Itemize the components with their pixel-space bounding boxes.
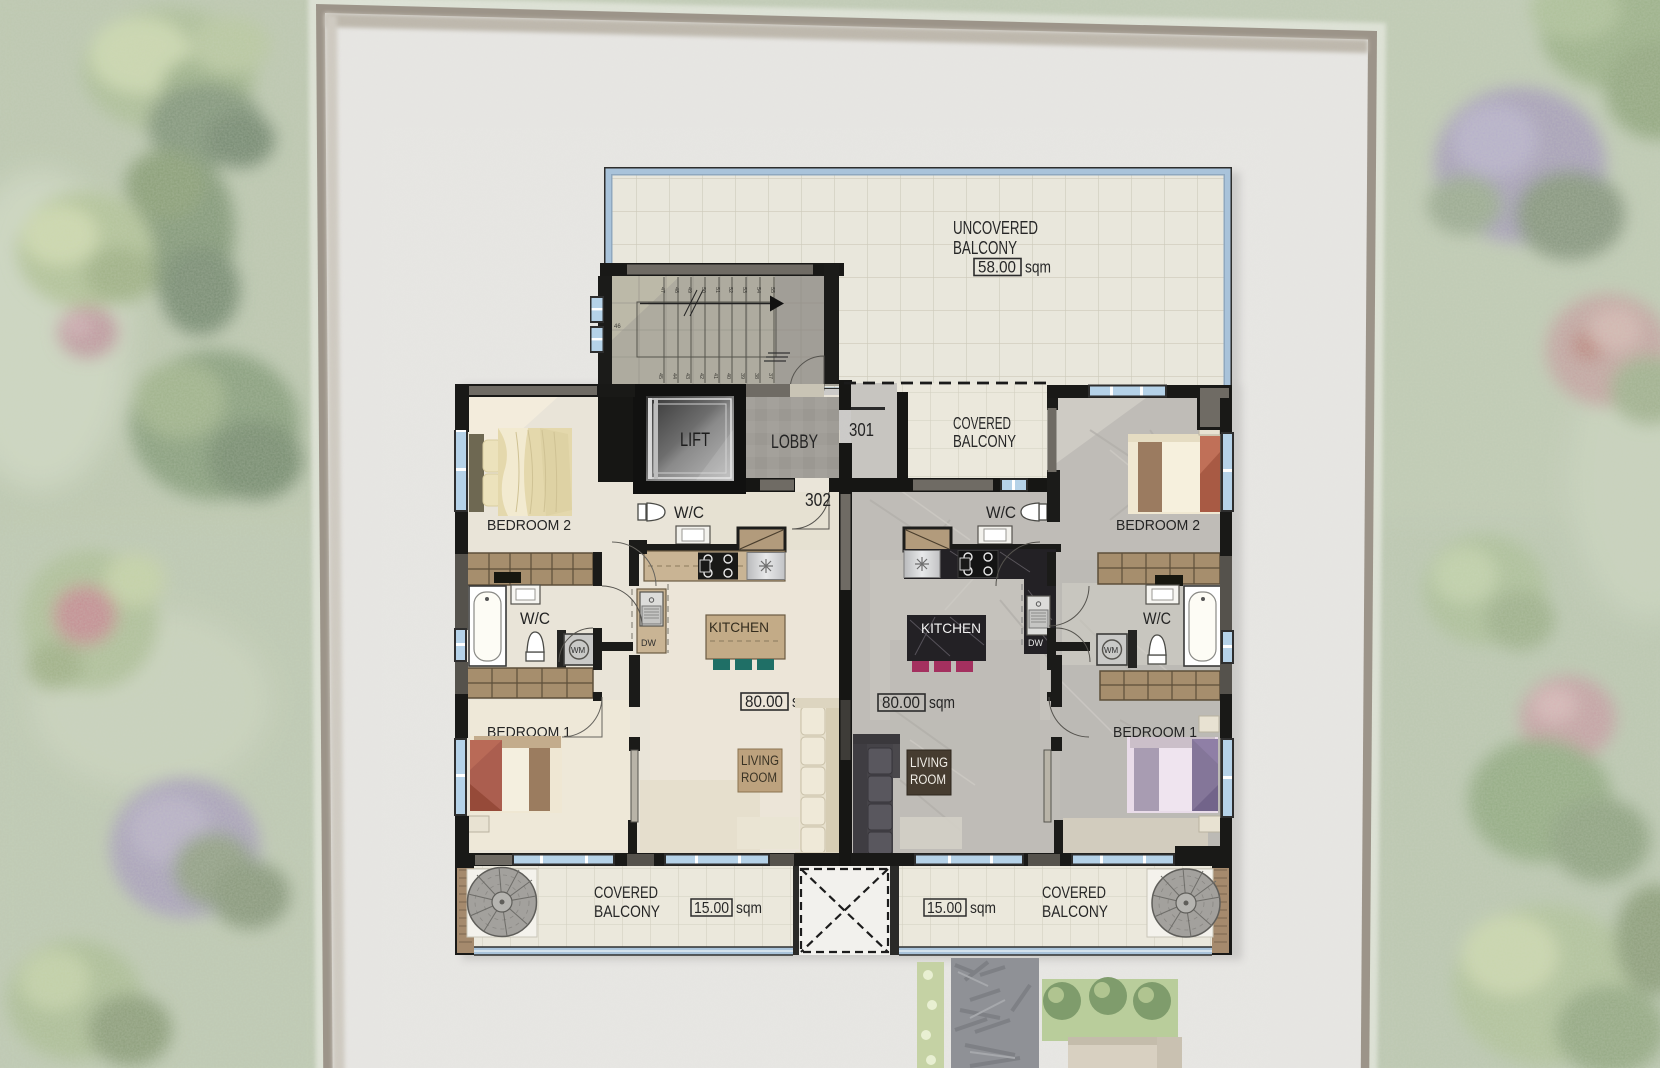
svg-text:BALCONY: BALCONY	[594, 903, 660, 921]
svg-text:sqm: sqm	[970, 900, 996, 917]
svg-text:BALCONY: BALCONY	[953, 431, 1016, 451]
svg-text:BEDROOM 2: BEDROOM 2	[487, 518, 571, 534]
svg-text:55: 55	[769, 287, 775, 293]
svg-text:302: 302	[805, 490, 831, 510]
svg-text:15.00: 15.00	[927, 900, 962, 917]
svg-text:50: 50	[700, 287, 706, 293]
svg-text:DW: DW	[641, 638, 656, 648]
svg-text:54: 54	[755, 287, 761, 293]
svg-text:15.00: 15.00	[694, 900, 729, 917]
svg-text:52: 52	[727, 287, 733, 293]
svg-text:301: 301	[849, 420, 874, 440]
svg-text:LOBBY: LOBBY	[771, 432, 818, 453]
svg-text:47: 47	[659, 287, 665, 293]
svg-text:51: 51	[714, 287, 720, 293]
svg-text:BALCONY: BALCONY	[953, 238, 1017, 258]
svg-text:COVERED: COVERED	[953, 413, 1011, 433]
svg-text:43: 43	[684, 373, 690, 379]
svg-text:sqm: sqm	[929, 694, 955, 712]
svg-text:COVERED: COVERED	[594, 884, 658, 902]
svg-text:KITCHEN: KITCHEN	[709, 619, 769, 635]
svg-text:UNCOVERED: UNCOVERED	[953, 218, 1038, 238]
svg-text:48: 48	[673, 287, 679, 293]
svg-text:ROOM: ROOM	[910, 772, 946, 787]
svg-text:BEDROOM 2: BEDROOM 2	[1116, 518, 1200, 534]
svg-text:DW: DW	[1028, 638, 1043, 648]
svg-text:39: 39	[739, 373, 745, 379]
svg-text:37: 37	[767, 373, 773, 379]
svg-text:53: 53	[741, 287, 747, 293]
svg-text:44: 44	[671, 373, 677, 379]
svg-text:LIVING: LIVING	[741, 753, 779, 768]
svg-text:ROOM: ROOM	[741, 770, 777, 785]
svg-text:49: 49	[686, 287, 692, 293]
svg-text:38: 38	[753, 373, 759, 379]
svg-text:KITCHEN: KITCHEN	[921, 620, 981, 636]
svg-text:W/C: W/C	[986, 504, 1016, 522]
svg-text:80.00: 80.00	[745, 693, 783, 711]
svg-text:40: 40	[725, 373, 731, 379]
svg-text:58.00: 58.00	[978, 259, 1016, 277]
svg-text:sqm: sqm	[736, 900, 762, 917]
svg-text:sqm: sqm	[1025, 259, 1051, 277]
svg-text:COVERED: COVERED	[1042, 884, 1106, 902]
svg-text:W/C: W/C	[1143, 610, 1171, 628]
svg-text:LIVING: LIVING	[910, 755, 948, 770]
svg-text:W/C: W/C	[520, 610, 550, 628]
svg-text:WM: WM	[1104, 646, 1119, 655]
svg-text:46: 46	[614, 324, 621, 330]
svg-text:WM: WM	[571, 646, 586, 655]
svg-text:45: 45	[657, 373, 663, 379]
svg-text:42: 42	[698, 373, 704, 379]
svg-text:BALCONY: BALCONY	[1042, 903, 1108, 921]
svg-text:80.00: 80.00	[882, 694, 920, 712]
svg-text:LIFT: LIFT	[680, 430, 710, 451]
svg-text:W/C: W/C	[674, 504, 704, 522]
svg-text:41: 41	[712, 373, 718, 379]
